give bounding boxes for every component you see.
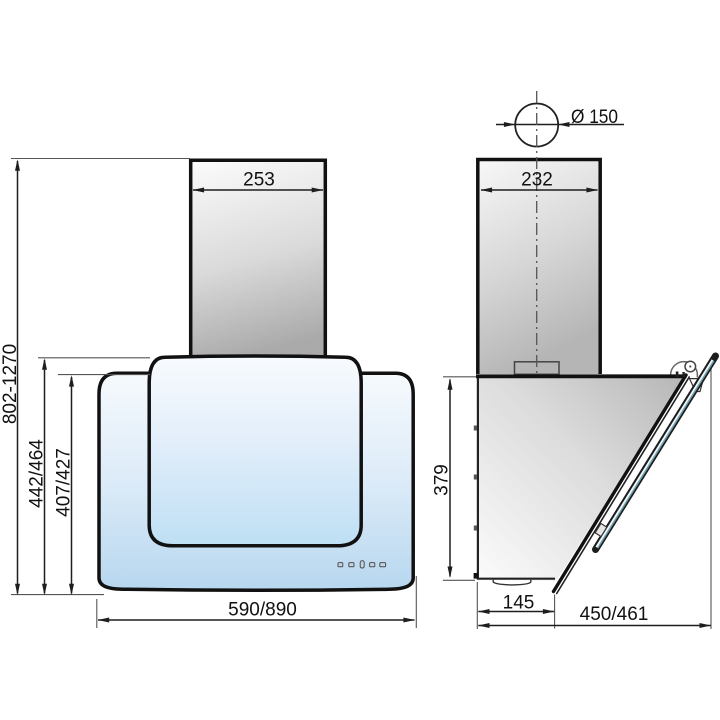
svg-text:145: 145: [503, 593, 535, 614]
svg-text:Ø 150: Ø 150: [571, 107, 618, 128]
svg-text:407/427: 407/427: [54, 448, 75, 517]
svg-text:442/464: 442/464: [27, 439, 48, 508]
svg-text:379: 379: [432, 464, 453, 496]
svg-text:802-1270: 802-1270: [0, 344, 21, 424]
svg-text:590/890: 590/890: [228, 600, 297, 621]
svg-text:253: 253: [243, 170, 275, 191]
svg-text:450/461: 450/461: [580, 604, 649, 625]
svg-text:232: 232: [521, 170, 553, 191]
